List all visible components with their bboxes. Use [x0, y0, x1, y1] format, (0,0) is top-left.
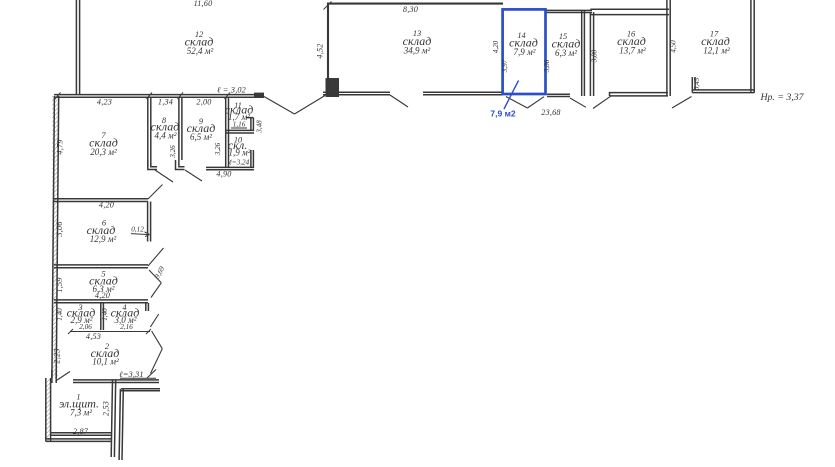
svg-text:2,16: 2,16	[120, 323, 133, 331]
svg-text:6,5 м²: 6,5 м²	[190, 132, 212, 142]
svg-text:4,23: 4,23	[97, 98, 112, 107]
svg-text:3,97: 3,97	[501, 59, 509, 73]
svg-text:4,20: 4,20	[95, 291, 110, 300]
svg-text:3,48: 3,48	[256, 120, 264, 134]
svg-text:4,4 м²: 4,4 м²	[155, 131, 177, 141]
svg-text:ℓ=3,31: ℓ=3,31	[119, 370, 143, 379]
svg-text:1,34: 1,34	[158, 98, 173, 107]
svg-text:1,16: 1,16	[233, 121, 246, 129]
svg-text:6,3 м²: 6,3 м²	[555, 48, 577, 58]
svg-text:12,9 м²: 12,9 м²	[90, 234, 117, 244]
svg-text:4,50: 4,50	[670, 40, 678, 53]
svg-text:1,40: 1,40	[101, 308, 109, 321]
svg-text:1,59: 1,59	[55, 277, 64, 292]
svg-text:1,40: 1,40	[56, 308, 64, 321]
svg-text:2,06: 2,06	[79, 323, 92, 331]
svg-text:4,53: 4,53	[86, 332, 101, 341]
svg-text:12,1 м²: 12,1 м²	[703, 46, 730, 56]
svg-text:2,53: 2,53	[102, 401, 111, 416]
svg-text:ℓ=3,24: ℓ=3,24	[229, 159, 250, 167]
svg-text:4,90: 4,90	[216, 170, 231, 179]
svg-text:11,60: 11,60	[194, 0, 213, 8]
svg-text:2,23: 2,23	[53, 348, 62, 363]
svg-text:20,3 м²: 20,3 м²	[90, 147, 117, 157]
svg-text:23,68: 23,68	[541, 108, 560, 117]
svg-text:3,06: 3,06	[55, 221, 64, 238]
svg-text:4,20: 4,20	[99, 201, 114, 210]
svg-text:10,1 м²: 10,1 м²	[92, 357, 119, 367]
svg-text:3,86: 3,86	[543, 59, 551, 73]
svg-text:7,9 м2: 7,9 м2	[490, 109, 515, 119]
svg-text:ℓ = 3,02: ℓ = 3,02	[217, 86, 246, 95]
svg-text:1,9 м²: 1,9 м²	[229, 148, 251, 158]
svg-text:3,26: 3,26	[214, 142, 222, 156]
svg-text:0,45: 0,45	[693, 77, 701, 90]
svg-text:34,9 м²: 34,9 м²	[403, 46, 431, 56]
svg-text:7,9 м²: 7,9 м²	[514, 47, 536, 57]
svg-text:Нр. = 3,37: Нр. = 3,37	[759, 92, 804, 103]
svg-text:13,7 м²: 13,7 м²	[619, 46, 646, 56]
svg-text:2,87: 2,87	[73, 427, 89, 436]
svg-text:2,00: 2,00	[196, 98, 211, 107]
svg-text:0,12: 0,12	[131, 226, 144, 234]
svg-text:4,52: 4,52	[316, 43, 325, 58]
svg-text:4,79: 4,79	[56, 139, 65, 154]
svg-text:7,3 м²: 7,3 м²	[70, 408, 92, 418]
svg-text:3,80: 3,80	[591, 49, 599, 63]
svg-text:9,69: 9,69	[153, 265, 166, 280]
svg-text:52,4 м²: 52,4 м²	[187, 46, 214, 56]
svg-text:3,26: 3,26	[169, 145, 177, 159]
svg-text:4,20: 4,20	[492, 40, 500, 53]
svg-text:8,30: 8,30	[403, 5, 418, 14]
